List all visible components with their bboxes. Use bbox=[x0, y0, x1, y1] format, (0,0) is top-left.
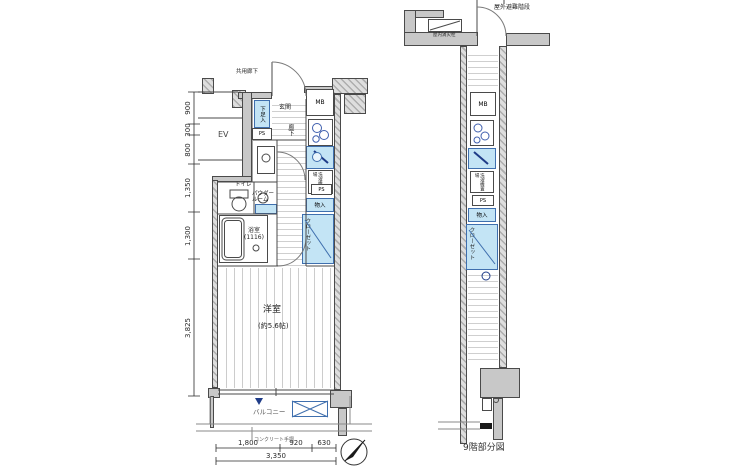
meter-box-label: MB bbox=[315, 99, 324, 106]
partial-meter-box: MB bbox=[470, 92, 496, 116]
top-right-exterior-wall-a bbox=[332, 78, 368, 94]
stairs-right-wall bbox=[506, 33, 550, 46]
balcony-hatch-box bbox=[292, 401, 328, 417]
room-size-label: (約5.6帖) bbox=[258, 322, 289, 330]
partial-closet-box: クローゼット bbox=[466, 224, 498, 270]
outdoor-stairs-label: 屋外避難階段 bbox=[494, 5, 530, 12]
entrance-label: 玄関 bbox=[279, 105, 291, 112]
partial-meter-box-label: MB bbox=[478, 101, 487, 108]
hydrant-box bbox=[428, 19, 462, 32]
room-label: 洋室 bbox=[263, 305, 281, 315]
partial-balcony-door bbox=[482, 398, 492, 411]
meter-box: MB bbox=[306, 89, 334, 116]
pipe-space-right-label: PS bbox=[318, 187, 324, 193]
dim-bottom-630: 630 bbox=[304, 439, 344, 447]
strip-corridor-floor-top bbox=[468, 50, 498, 90]
balcony-label: バルコニー bbox=[253, 409, 285, 416]
toilet-label: トイレ bbox=[235, 182, 252, 188]
partial-closet-label: クローゼット bbox=[468, 227, 474, 260]
dim-bottom-total: 3,350 bbox=[256, 452, 296, 460]
dim-bottom-1800: 1,800 bbox=[228, 439, 268, 447]
partial-stove-unit bbox=[470, 120, 494, 146]
balcony-block bbox=[480, 368, 520, 398]
balcony-left-wall bbox=[210, 396, 214, 428]
strip-corridor-floor-bottom bbox=[468, 270, 498, 365]
balcony-right-pillar bbox=[330, 390, 352, 408]
elevator-label: EV bbox=[218, 130, 229, 139]
shoe-storage-box: 下足入 bbox=[254, 100, 270, 128]
hydrant-label: 屋内消火栓 bbox=[433, 33, 456, 38]
balcony-lower-wall bbox=[493, 398, 503, 440]
left-exterior-wall bbox=[212, 180, 218, 388]
floorplan-canvas: 下足入 PS MB 洗濯機置場 PS 物入 クローゼット 共用廊下 EV 玄関 bbox=[0, 0, 730, 470]
corridor-corner-wall bbox=[202, 78, 214, 94]
strip-right-wall bbox=[499, 46, 507, 368]
kitchen-sink-unit bbox=[306, 146, 334, 169]
bathroom-label: 浴室 (1116) bbox=[244, 228, 264, 242]
closet-label: クローゼット bbox=[304, 218, 310, 251]
pipe-space-right-box: PS bbox=[311, 184, 332, 195]
storage-label: 物入 bbox=[314, 201, 325, 209]
pipe-space-left-label: PS bbox=[259, 131, 265, 137]
balcony-right-wall bbox=[338, 408, 347, 436]
stove-unit bbox=[308, 119, 333, 146]
partial-plan-caption: 9階部分図 bbox=[463, 443, 505, 453]
common-corridor-label: 共用廊下 bbox=[236, 69, 258, 75]
partial-floorplan-9f: MB 洗濯機置場 PS 物入 クローゼット 屋外避難階段 屋内消火栓 9階部分図 bbox=[0, 0, 730, 470]
shoe-storage-label: 下足入 bbox=[258, 106, 266, 123]
dim-left-1300: 1,300 bbox=[184, 216, 192, 256]
partial-laundry-label: 洗濯機置場 bbox=[474, 173, 484, 192]
storage-box: 物入 bbox=[306, 198, 334, 212]
pipe-space-left-box: PS bbox=[252, 128, 272, 140]
top-right-exterior-wall-b bbox=[344, 94, 366, 114]
corridor-label: 廊下 bbox=[286, 124, 293, 148]
partial-pipe-space-box: PS bbox=[472, 195, 494, 206]
partial-storage-label: 物入 bbox=[476, 211, 487, 219]
powder-room-label: パウダー ルーム bbox=[252, 191, 274, 204]
dim-left-3825: 3,825 bbox=[184, 308, 192, 348]
partial-pipe-space-label: PS bbox=[480, 198, 486, 204]
bathroom-label-line2: (1116) bbox=[244, 234, 264, 241]
unit-upper-left-wall bbox=[242, 92, 252, 180]
partial-laundry-box: 洗濯機置場 bbox=[470, 171, 494, 193]
powder-room-label-line2: ルーム bbox=[252, 197, 268, 203]
washlet-fixture bbox=[257, 146, 275, 174]
dim-left-800: 800 bbox=[184, 130, 192, 170]
dim-left-1350: 1,350 bbox=[184, 168, 192, 208]
partial-storage-box: 物入 bbox=[468, 208, 496, 222]
closet-box: クローゼット bbox=[302, 214, 334, 264]
powder-vanity-unit bbox=[255, 204, 277, 214]
right-exterior-wall bbox=[334, 94, 341, 390]
partial-sink-unit bbox=[468, 148, 496, 169]
